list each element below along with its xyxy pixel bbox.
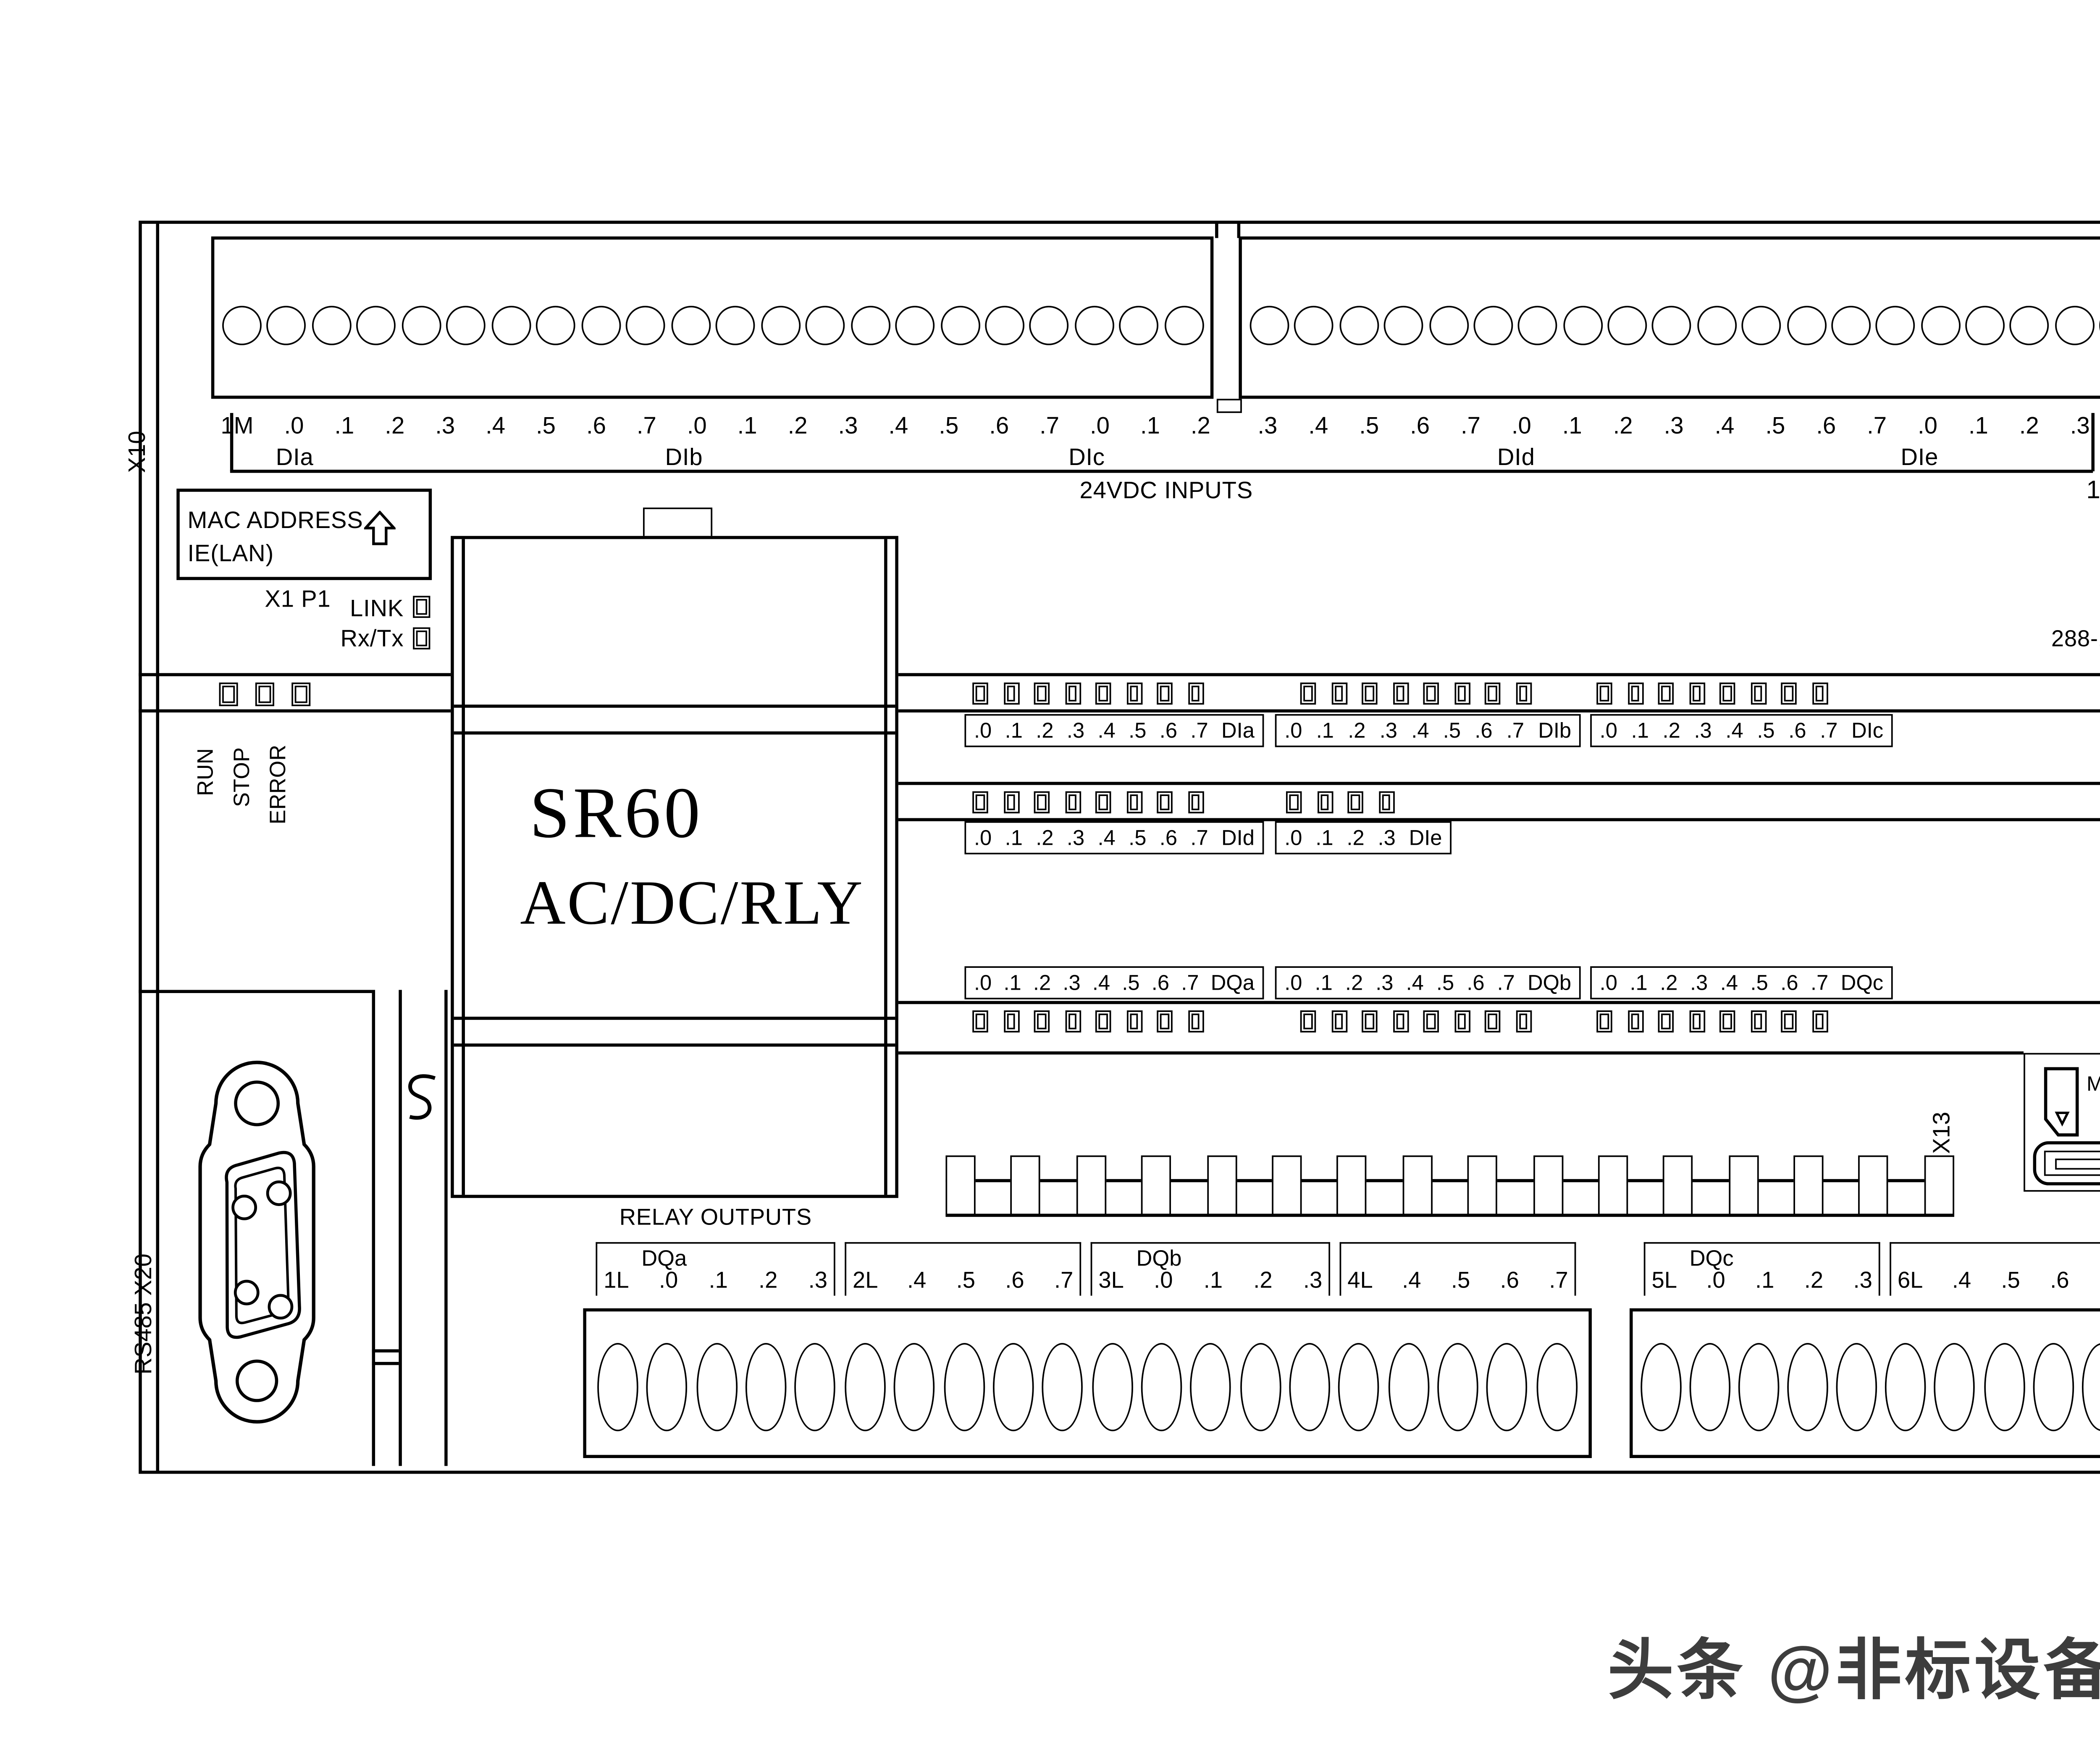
- output-led: [1515, 1010, 1531, 1033]
- dqc-group-label: DQc: [1690, 1245, 1734, 1270]
- module-band-2b: [454, 1043, 895, 1046]
- input-led: [1065, 791, 1081, 814]
- bus-tooth: [1467, 1156, 1497, 1216]
- module-gap-line-1: [372, 990, 375, 1466]
- input-labels-right: .3 .4 .5 .6 .7 .0 .1 .2 .3 .4 .5 .6 .7 .…: [1257, 413, 2089, 440]
- input-led: [1187, 683, 1203, 705]
- group-4-terminals: 4L .4 .5 .6 .7: [1347, 1269, 1568, 1294]
- input-led: [1286, 791, 1302, 814]
- seam-e: [898, 1001, 2100, 1004]
- screw-terminal: [993, 1343, 1034, 1431]
- input-led: [1423, 683, 1439, 705]
- screw-terminal: [312, 306, 352, 345]
- input-led: [1627, 683, 1643, 705]
- dib-label-box: .0 .1 .2 .3 .4 .5 .6 .7 DIb: [1275, 714, 1581, 746]
- module-right-rim: [884, 539, 887, 1195]
- status-led-strip: [219, 683, 311, 706]
- input-led: [1034, 791, 1050, 814]
- screw-terminal: [895, 306, 934, 345]
- db9-connector: [192, 1043, 322, 1437]
- screw-terminal: [795, 1343, 836, 1431]
- input-labels-left: 1M .0 .1 .2 .3 .4 .5 .6 .7 .0 .1 .2 .3 .…: [220, 413, 1210, 440]
- input-led: [1065, 683, 1081, 705]
- bus-tooth: [1011, 1156, 1041, 1216]
- seam-a-right: [898, 673, 2100, 675]
- output-led: [1331, 1010, 1347, 1033]
- module-left-rim: [462, 539, 464, 1195]
- bus-tooth: [1141, 1156, 1171, 1216]
- status-led: [291, 683, 310, 706]
- group-1-terminals: 1L .0 .1 .2 .3: [604, 1269, 827, 1294]
- seam-a-left: [139, 673, 451, 675]
- output-group-4: 4L .4 .5 .6 .7: [1340, 1242, 1576, 1296]
- screw-terminal: [1831, 306, 1871, 345]
- screw-terminal: [1164, 306, 1204, 345]
- run-led-label: RUN: [192, 723, 218, 796]
- output-led: [1003, 1010, 1019, 1033]
- output-led: [1811, 1010, 1827, 1033]
- screw-terminal: [2082, 1343, 2100, 1431]
- screw-terminal: [1641, 1343, 1682, 1431]
- seam-f: [898, 1051, 2024, 1054]
- input-led: [1515, 683, 1531, 705]
- gap-tick-2: [372, 1362, 399, 1364]
- input-led: [1095, 683, 1111, 705]
- power-type-text: AC/DC/RLY: [520, 870, 864, 936]
- output-led: [1454, 1010, 1470, 1033]
- module-gap-line-3: [444, 990, 447, 1466]
- screw-terminal: [1240, 1343, 1281, 1431]
- group-6-terminals: 6L .4 .5 .6 .7: [1898, 1269, 2100, 1294]
- screw-terminal: [1935, 1343, 1976, 1431]
- die-led-strip: [1286, 791, 1394, 814]
- group-did-label: DId: [1497, 446, 1535, 471]
- watermark-text: 头条 @非标设备自动化设计: [1607, 1617, 2100, 1713]
- module-band-2a: [454, 1017, 895, 1019]
- di-underline-right-tick: [2091, 413, 2094, 471]
- input-led: [1300, 683, 1316, 705]
- group-5-terminals: 5L .0 .1 .2 .3: [1652, 1269, 1872, 1294]
- seam-c: [898, 782, 2100, 784]
- output-led: [1126, 1010, 1142, 1033]
- input-led: [1126, 683, 1142, 705]
- screw-terminal: [850, 306, 890, 345]
- screw-terminal: [761, 306, 800, 345]
- input-led: [1454, 683, 1470, 705]
- output-led: [1095, 1010, 1111, 1033]
- bus-tooth: [1794, 1156, 1824, 1216]
- bus-tooth: [1533, 1156, 1562, 1216]
- screw-terminal: [536, 306, 576, 345]
- screw-terminal: [1965, 306, 2005, 345]
- screw-terminal: [1092, 1343, 1133, 1431]
- output-terminals-left: [597, 1343, 1578, 1431]
- bus-tooth: [1859, 1156, 1889, 1216]
- screw-terminal: [491, 306, 531, 345]
- error-led-label: ERROR: [265, 720, 290, 825]
- dic-label-box: .0 .1 .2 .3 .4 .5 .6 .7 DIc: [1590, 714, 1893, 746]
- clip-icon: [405, 1072, 440, 1129]
- screw-terminal: [1788, 1343, 1829, 1431]
- dic-led-strip: [1596, 683, 1827, 705]
- seam-b-left: [139, 710, 451, 712]
- bus-tooth: [1076, 1156, 1106, 1216]
- output-led: [1065, 1010, 1081, 1033]
- screw-terminal: [626, 306, 666, 345]
- group-3-terminals: 3L .0 .1 .2 .3: [1098, 1269, 1322, 1294]
- output-led: [1627, 1010, 1643, 1033]
- bus-tooth: [1924, 1156, 1954, 1216]
- status-led: [255, 683, 274, 706]
- ethernet-port-label: X1 P1: [265, 588, 331, 613]
- group-dia-label: DIa: [276, 446, 314, 471]
- input-led: [1157, 791, 1173, 814]
- rxtx-led-label: Rx/Tx: [341, 627, 404, 652]
- screw-terminal: [1384, 306, 1423, 345]
- input-led: [1317, 791, 1333, 814]
- screw-terminal: [1697, 306, 1736, 345]
- output-led: [1392, 1010, 1408, 1033]
- screw-terminal: [2055, 306, 2094, 345]
- screw-terminal: [696, 1343, 738, 1431]
- model-text: SR60: [530, 775, 703, 851]
- mac-address-label: MAC ADDRESS: [188, 509, 363, 534]
- input-led: [1157, 683, 1173, 705]
- output-terminals-right: [1641, 1343, 2100, 1431]
- output-led: [1157, 1010, 1173, 1033]
- stop-led-label: STOP: [228, 722, 254, 807]
- screw-terminal: [1738, 1343, 1780, 1431]
- screw-terminal: [2032, 1343, 2074, 1431]
- screw-terminal: [894, 1343, 935, 1431]
- module-gap-line-2: [399, 990, 401, 1466]
- screw-terminal: [1429, 306, 1468, 345]
- screw-terminal: [222, 306, 262, 345]
- input-led: [1347, 791, 1363, 814]
- input-led: [1750, 683, 1766, 705]
- did-led-strip: [972, 791, 1203, 814]
- output-led: [1596, 1010, 1612, 1033]
- connector-x10-label: X10: [123, 404, 152, 473]
- screw-terminal: [1742, 306, 1781, 345]
- bus-tooth: [1207, 1156, 1236, 1216]
- inputs-caption: 24VDC INPUTS: [1040, 479, 1292, 504]
- output-group-2: 2L .4 .5 .6 .7: [845, 1242, 1081, 1296]
- status-led: [219, 683, 238, 706]
- block-bridge-line-1: [1215, 222, 1218, 238]
- order-number: 288-1SR60-0AA0: [2033, 629, 2100, 653]
- bus-tooth: [1598, 1156, 1628, 1216]
- input-led: [1689, 683, 1705, 705]
- relay-outputs-caption: RELAY OUTPUTS: [619, 1207, 812, 1231]
- bus-tooth: [1728, 1156, 1758, 1216]
- block-bridge-line-2: [1237, 222, 1240, 238]
- bus-tooth: [1402, 1156, 1432, 1216]
- input-terminals-left: [222, 306, 1204, 345]
- di-underline-left-tick: [230, 413, 233, 471]
- bus-teeth: [945, 1156, 1954, 1216]
- screw-terminal: [2010, 306, 2050, 345]
- screw-terminal: [267, 306, 307, 345]
- gap-tick-1: [372, 1349, 399, 1352]
- input-led: [972, 683, 988, 705]
- seam-b-right: [898, 710, 2100, 712]
- seam-d: [898, 818, 2100, 820]
- scale-wrapper: X10 X11 1M .0 .1 .2 .3 .4 .5 .6 .7 .0 .1…: [0, 0, 2100, 1737]
- input-terminals-right: [1250, 306, 2100, 345]
- input-led: [1392, 683, 1408, 705]
- screw-terminal: [943, 1343, 984, 1431]
- dqc-label-box: .0 .1 .2 .3 .4 .5 .6 .7 DQc: [1590, 966, 1893, 999]
- dia-led-strip: [972, 683, 1203, 705]
- screw-terminal: [1487, 1343, 1528, 1431]
- output-led: [1300, 1010, 1316, 1033]
- link-led-label: LINK: [350, 597, 404, 622]
- x13-text: X13: [1930, 1112, 1953, 1154]
- output-led: [1719, 1010, 1735, 1033]
- output-led: [1689, 1010, 1705, 1033]
- input-led: [1034, 683, 1050, 705]
- screw-terminal: [1876, 306, 1915, 345]
- screw-terminal: [446, 306, 486, 345]
- sd-label-line2: X50: [2087, 1100, 2100, 1122]
- plc-diagram: X10 X11 1M .0 .1 .2 .3 .4 .5 .6 .7 .0 .1…: [0, 0, 2100, 1737]
- screw-terminal: [1652, 306, 1692, 345]
- sd-label-line1: Micro-SD: [2087, 1073, 2100, 1095]
- input-led: [1187, 791, 1203, 814]
- die-label-box: .0 .1 .2 .3 DIe: [1275, 821, 1452, 854]
- dib-led-strip: [1300, 683, 1531, 705]
- input-led: [1331, 683, 1347, 705]
- bus-baseline: [945, 1214, 1954, 1216]
- bus-tooth: [1663, 1156, 1693, 1216]
- rs485-port-label: RS485 X20: [129, 1138, 158, 1374]
- input-led: [1781, 683, 1797, 705]
- input-led: [1485, 683, 1501, 705]
- bus-tooth: [1337, 1156, 1367, 1216]
- screw-terminal: [940, 306, 979, 345]
- input-led: [1596, 683, 1612, 705]
- output-group-3: DQb 3L .0 .1 .2 .3: [1091, 1242, 1330, 1296]
- output-led: [1187, 1010, 1203, 1033]
- screw-terminal: [581, 306, 621, 345]
- screw-terminal: [357, 306, 396, 345]
- screw-terminal: [1250, 306, 1289, 345]
- output-led: [1750, 1010, 1766, 1033]
- screw-terminal: [647, 1343, 688, 1431]
- screw-terminal: [1438, 1343, 1479, 1431]
- block-bridge-tab: [1217, 399, 1242, 413]
- input-led: [1003, 683, 1019, 705]
- screw-terminal: [1536, 1343, 1578, 1431]
- output-group-6: 6L .4 .5 .6 .7: [1890, 1242, 2100, 1296]
- screw-terminal: [1339, 1343, 1380, 1431]
- output-led: [1658, 1010, 1674, 1033]
- dqb-led-strip: [1300, 1010, 1531, 1033]
- group-dic-label: DIc: [1068, 446, 1105, 471]
- screw-terminal: [1473, 306, 1513, 345]
- screw-terminal: [1339, 306, 1379, 345]
- did-label-box: .0 .1 .2 .3 .4 .5 .6 .7 DId: [964, 821, 1264, 854]
- seam-left-module: [139, 990, 372, 993]
- screw-terminal: [1786, 306, 1826, 345]
- screw-terminal: [1042, 1343, 1083, 1431]
- screw-terminal: [1984, 1343, 2025, 1431]
- screw-terminal: [985, 306, 1024, 345]
- input-led: [1378, 791, 1394, 814]
- input-led: [1362, 683, 1378, 705]
- screw-terminal: [402, 306, 441, 345]
- screw-terminal: [597, 1343, 638, 1431]
- bus-tooth: [945, 1156, 975, 1216]
- screw-terminal: [1388, 1343, 1429, 1431]
- sd-card-icon: [2041, 1066, 2082, 1138]
- input-led: [972, 791, 988, 814]
- module-top-tab: [643, 507, 712, 537]
- screw-terminal: [1075, 306, 1114, 345]
- dqa-led-strip: [972, 1010, 1203, 1033]
- dia-label-box: .0 .1 .2 .3 .4 .5 .6 .7 DIa: [964, 714, 1264, 746]
- dqa-label-box: .0 .1 .2 .3 .4 .5 .6 .7 DQa: [964, 966, 1264, 999]
- dqb-group-label: DQb: [1136, 1245, 1181, 1270]
- screw-terminal: [1294, 306, 1334, 345]
- screw-terminal: [1518, 306, 1557, 345]
- screw-terminal: [671, 306, 710, 345]
- output-led: [1034, 1010, 1050, 1033]
- input-led: [1003, 791, 1019, 814]
- rxtx-led: [413, 627, 430, 649]
- screw-terminal: [1030, 306, 1069, 345]
- mac-up-arrow-icon: [364, 511, 396, 546]
- output-group-5: DQc 5L .0 .1 .2 .3: [1644, 1242, 1880, 1296]
- link-led: [413, 596, 430, 618]
- screw-terminal: [1837, 1343, 1878, 1431]
- group-2-terminals: 2L .4 .5 .6 .7: [853, 1269, 1073, 1294]
- dqa-group-label: DQa: [641, 1245, 687, 1270]
- screw-terminal: [845, 1343, 886, 1431]
- group-die-label: DIe: [1900, 446, 1938, 471]
- output-led: [1485, 1010, 1501, 1033]
- sd-slot-opening: [2055, 1158, 2100, 1169]
- output-led: [1781, 1010, 1797, 1033]
- di-group-underline: [230, 470, 2093, 472]
- screw-terminal: [716, 306, 755, 345]
- screw-terminal: [1690, 1343, 1731, 1431]
- screw-terminal: [1885, 1343, 1927, 1431]
- screw-terminal: [1607, 306, 1647, 345]
- group-dib-label: DIb: [665, 446, 703, 471]
- screw-terminal: [1921, 306, 1960, 345]
- module-band-1a: [454, 704, 895, 707]
- screw-terminal: [1563, 306, 1602, 345]
- dqc-led-strip: [1596, 1010, 1827, 1033]
- bus-tooth: [1272, 1156, 1302, 1216]
- screw-terminal: [806, 306, 845, 345]
- screw-terminal: [1120, 306, 1159, 345]
- input-led: [1658, 683, 1674, 705]
- ie-lan-label: IE(LAN): [188, 542, 274, 567]
- screw-terminal: [1141, 1343, 1182, 1431]
- input-led: [1126, 791, 1142, 814]
- screw-terminal: [745, 1343, 787, 1431]
- output-led: [1362, 1010, 1378, 1033]
- module-band-1b: [454, 731, 895, 734]
- input-led: [1719, 683, 1735, 705]
- input-led: [1811, 683, 1827, 705]
- screw-terminal: [1190, 1343, 1231, 1431]
- ac-power-caption: 120-240VAC: [2077, 479, 2100, 506]
- input-led: [1095, 791, 1111, 814]
- dqb-label-box: .0 .1 .2 .3 .4 .5 .6 .7 DQb: [1275, 966, 1581, 999]
- output-group-1: DQa 1L .0 .1 .2 .3: [596, 1242, 835, 1296]
- screw-terminal: [1289, 1343, 1331, 1431]
- output-led: [1423, 1010, 1439, 1033]
- output-led: [972, 1010, 988, 1033]
